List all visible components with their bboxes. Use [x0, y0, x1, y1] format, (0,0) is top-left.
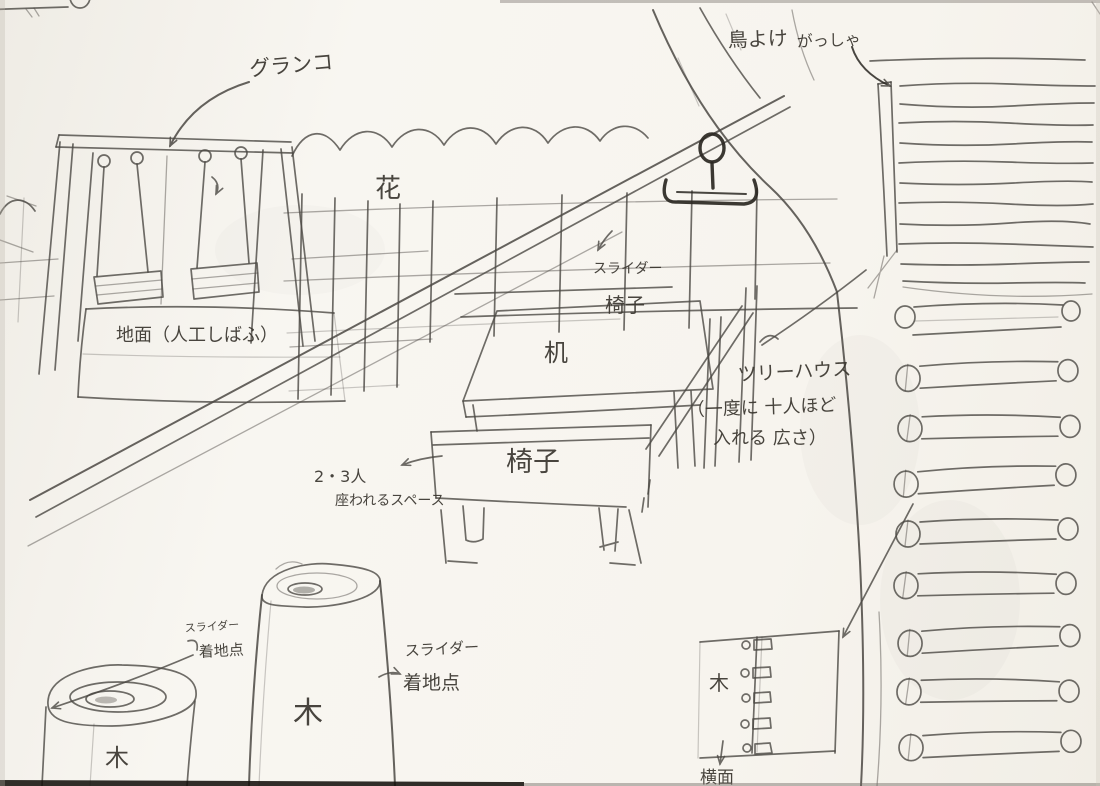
sketch-canvas: グランコ 花 鳥よけ がっしゃ スライダー 椅子 机 ツリーハウス （一度に 十… — [0, 0, 1100, 786]
swing-label-arrow — [170, 82, 249, 146]
label-landing-right: 着地点 — [403, 672, 460, 694]
label-desk: 机 — [544, 339, 568, 367]
label-slider-small: スライダー — [184, 617, 239, 635]
label-tree-side: 木 — [709, 671, 729, 695]
leader-lines — [760, 47, 913, 637]
slat-wall — [868, 82, 1095, 298]
label-ground: 地面（人工しばふ） — [116, 325, 278, 346]
tree-trunk-center — [249, 562, 395, 786]
label-swing: グランコ — [248, 50, 334, 81]
label-slider-right: スライダー — [404, 638, 479, 660]
bench-back — [455, 287, 857, 317]
label-pulley: がっしゃ — [796, 30, 861, 51]
side-view-box — [698, 631, 839, 764]
label-chair-front: 椅子 — [506, 447, 560, 478]
label-tree-center: 木 — [293, 696, 323, 731]
label-slider-top: スライダー — [593, 261, 662, 277]
label-flower: 花 — [375, 174, 401, 204]
label-capacity-2: 入れる 広さ） — [713, 428, 827, 449]
ground-patch — [78, 307, 345, 403]
zipline — [28, 96, 790, 546]
label-chair-back: 椅子 — [605, 293, 645, 317]
label-seating-2: 座われるスペース — [335, 493, 445, 509]
label-seating-1: 2・3人 — [314, 467, 366, 486]
sketch-page: グランコ 花 鳥よけ がっしゃ スライダー 椅子 机 ツリーハウス （一度に 十… — [0, 0, 1100, 786]
pulley-handle — [664, 134, 756, 204]
label-tree-stump: 木 — [105, 744, 129, 772]
label-landing-small: 着地点 — [198, 641, 244, 661]
label-bird-guard: 鳥よけ — [727, 26, 788, 52]
